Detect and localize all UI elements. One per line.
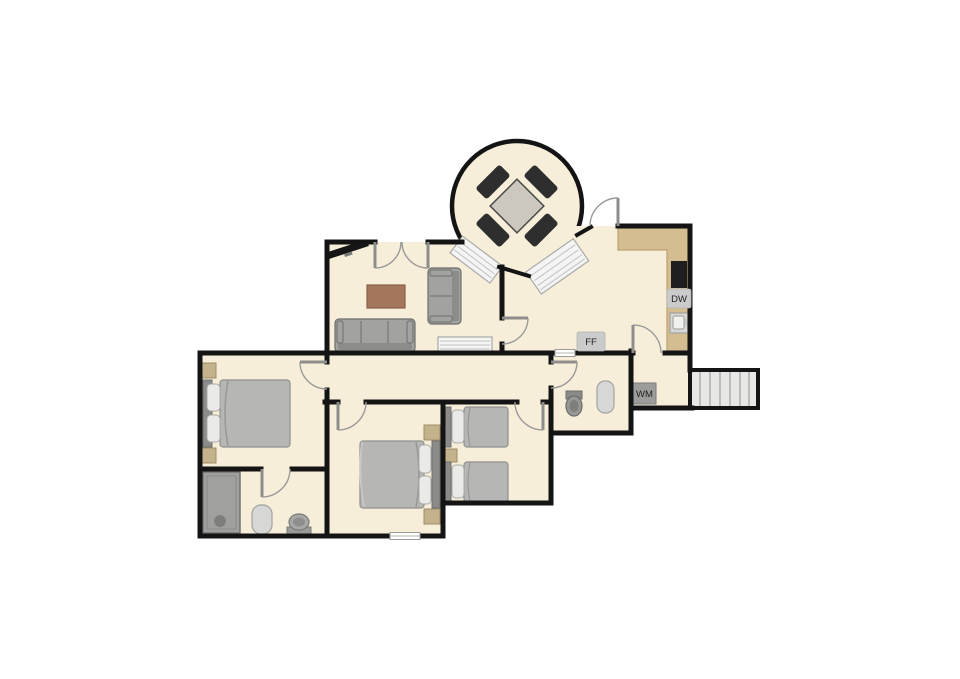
- nightstand-icon: [202, 363, 216, 378]
- washbasin-icon: [597, 381, 614, 413]
- svg-text:FF: FF: [585, 337, 597, 348]
- hob-icon: [671, 261, 687, 288]
- nightstand-icon: [424, 425, 440, 440]
- dishwasher-label: DW: [667, 289, 691, 308]
- single-bed-icon: [444, 462, 508, 502]
- sink-basin: [673, 316, 684, 329]
- nightstand-icon: [424, 509, 440, 524]
- floor-plan-drawing: WM: [0, 0, 960, 679]
- sofa-3-seat-icon: [335, 319, 415, 352]
- nightstand-icon: [444, 449, 457, 462]
- coffee-table-icon: [367, 285, 405, 308]
- wc-floor: [551, 353, 631, 433]
- single-bed-icon: [444, 407, 508, 447]
- svg-text:DW: DW: [671, 294, 687, 305]
- sofa-2-seat-icon: [428, 268, 461, 324]
- toilet-icon: [566, 391, 582, 416]
- stairs: [690, 370, 758, 408]
- washing-machine: WM: [633, 383, 656, 404]
- washing-machine-label: WM: [636, 389, 653, 400]
- nightstand-icon: [202, 448, 216, 463]
- washbasin-icon: [252, 505, 272, 534]
- radiator-icon: [438, 337, 492, 352]
- floor-plan-page: WM: [0, 0, 960, 679]
- toilet-icon: [287, 514, 311, 536]
- shower-icon: [203, 472, 240, 533]
- hallway-floor: [327, 353, 552, 403]
- fridge-freezer-label: FF: [577, 332, 605, 351]
- window-icon: [390, 533, 420, 540]
- window-icon: [555, 350, 575, 357]
- door-icon: [590, 198, 618, 226]
